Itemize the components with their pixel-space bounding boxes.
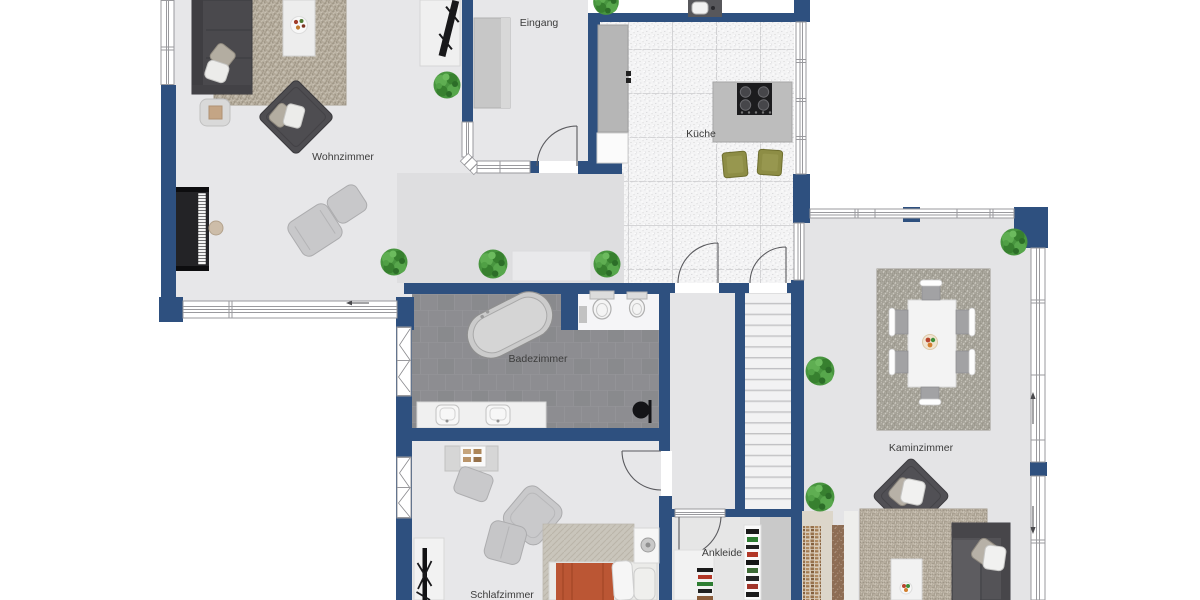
svg-text:Schlafzimmer: Schlafzimmer — [470, 589, 534, 600]
svg-text:Badezimmer: Badezimmer — [509, 353, 568, 365]
svg-text:Küche: Küche — [686, 128, 716, 140]
svg-text:Wohnzimmer: Wohnzimmer — [312, 151, 374, 163]
svg-text:Ankleide: Ankleide — [702, 547, 742, 559]
svg-text:Eingang: Eingang — [520, 17, 559, 29]
svg-text:Kaminzimmer: Kaminzimmer — [889, 442, 954, 454]
